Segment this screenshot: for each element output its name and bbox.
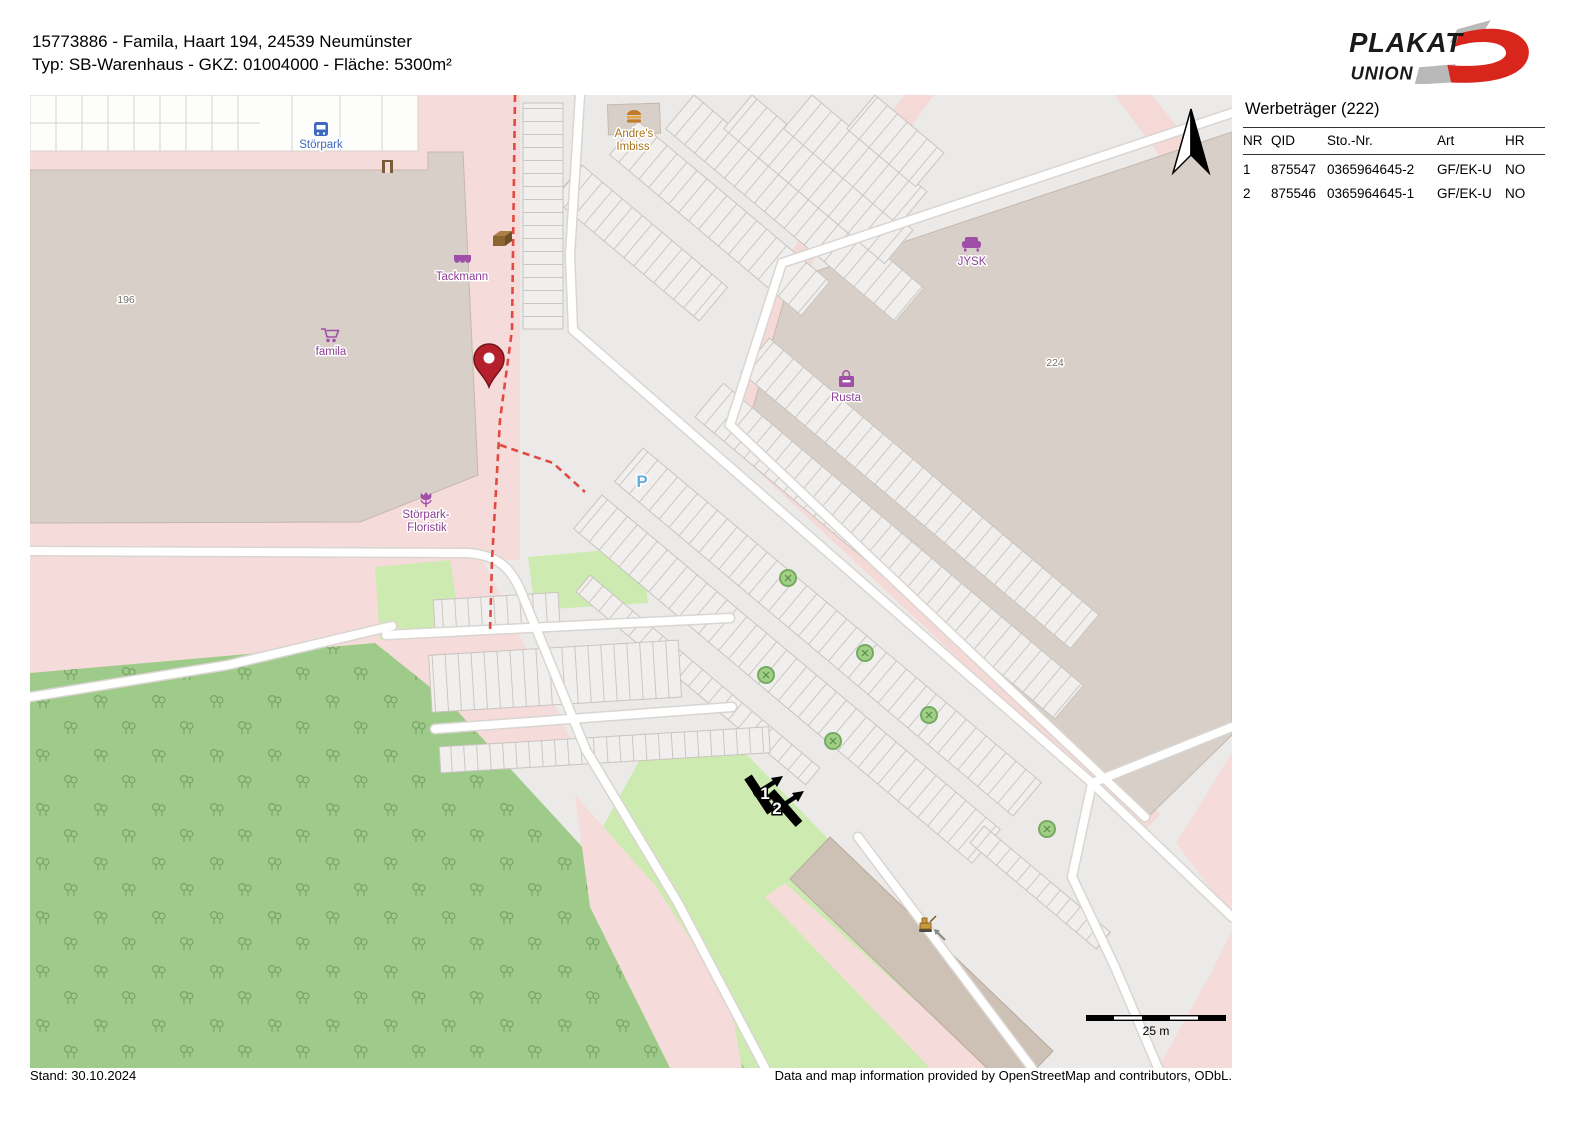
map: Störpark Tackmann famila 196 xyxy=(30,95,1232,1068)
tree-icon xyxy=(921,707,937,723)
bus-stop-icon xyxy=(314,122,328,136)
famila-building xyxy=(30,152,478,523)
company-logo: PLAKAT UNION xyxy=(1342,14,1542,84)
table-header-row: NR QID Sto.-Nr. Art HR xyxy=(1243,128,1545,155)
cell-hr: NO xyxy=(1505,155,1545,180)
floristik-label-line1: Störpark- xyxy=(402,509,449,521)
floristik-label-line2: Floristik xyxy=(407,522,447,534)
cell-qid: 875546 xyxy=(1271,179,1327,203)
stand-date: Stand: 30.10.2024 xyxy=(30,1068,136,1083)
cell-nr: 2 xyxy=(1243,179,1271,203)
cell-hr: NO xyxy=(1505,179,1545,203)
werbetraeger-table: NR QID Sto.-Nr. Art HR 1 875547 03659646… xyxy=(1243,127,1545,203)
table-row: 1 875547 0365964645-2 GF/EK-U NO xyxy=(1243,155,1545,180)
tree-icon xyxy=(857,645,873,661)
col-hr: HR xyxy=(1505,128,1545,155)
logo-text-union: UNION xyxy=(1351,62,1414,83)
col-sto-nr: Sto.-Nr. xyxy=(1327,128,1437,155)
house-number-224: 224 xyxy=(1046,357,1064,369)
house-number-196: 196 xyxy=(117,294,135,306)
billboard-marker-2-number: 2 xyxy=(772,799,781,818)
col-qid: QID xyxy=(1271,128,1327,155)
cell-nr: 1 xyxy=(1243,155,1271,180)
cell-qid: 875547 xyxy=(1271,155,1327,180)
imbiss-label-line2: Imbiss xyxy=(616,141,649,153)
entrance-door-icon xyxy=(382,160,393,173)
werbetraeger-panel: Werbeträger (222) NR QID Sto.-Nr. Art HR… xyxy=(1243,100,1553,203)
plakat-union-logo-graphic: PLAKAT UNION xyxy=(1342,14,1542,84)
doc-header: 15773886 - Famila, Haart 194, 24539 Neum… xyxy=(32,30,452,76)
tackmann-label: Tackmann xyxy=(436,271,488,283)
cell-sto-nr: 0365964645-1 xyxy=(1327,179,1437,203)
famila-label: famila xyxy=(316,346,347,358)
page: 15773886 - Famila, Haart 194, 24539 Neum… xyxy=(0,0,1587,1123)
burger-icon xyxy=(627,110,641,123)
cell-art: GF/EK-U xyxy=(1437,179,1505,203)
jysk-label: JYSK xyxy=(958,256,987,268)
billboard-marker-1-number: 1 xyxy=(760,784,769,803)
parking-column xyxy=(523,103,563,329)
col-art: Art xyxy=(1437,128,1505,155)
doc-title-line2: Typ: SB-Warenhaus - GKZ: 01004000 - Fläc… xyxy=(32,53,452,76)
scale-label: 25 m xyxy=(1143,1024,1170,1038)
tackmann-awning-icon xyxy=(454,255,471,263)
col-nr: NR xyxy=(1243,128,1271,155)
osm-attribution: Data and map information provided by Ope… xyxy=(332,1068,1232,1083)
logo-text-plakat: PLAKAT xyxy=(1349,27,1464,58)
cell-art: GF/EK-U xyxy=(1437,155,1505,180)
rusta-label: Rusta xyxy=(831,392,862,404)
doc-title-line1: 15773886 - Famila, Haart 194, 24539 Neum… xyxy=(32,30,452,53)
map-canvas: Störpark Tackmann famila 196 xyxy=(30,95,1232,1068)
storpark-label: Störpark xyxy=(299,139,343,151)
imbiss-label-line1: Andre's xyxy=(615,128,654,140)
cell-sto-nr: 0365964645-2 xyxy=(1327,155,1437,180)
tree-icon xyxy=(758,667,774,683)
table-row: 2 875546 0365964645-1 GF/EK-U NO xyxy=(1243,179,1545,203)
tree-icon xyxy=(825,733,841,749)
tree-icon xyxy=(780,570,796,586)
parking-p-symbol: P xyxy=(636,472,647,491)
werbetraeger-title: Werbeträger (222) xyxy=(1245,100,1553,119)
tree-icon xyxy=(1039,821,1055,837)
